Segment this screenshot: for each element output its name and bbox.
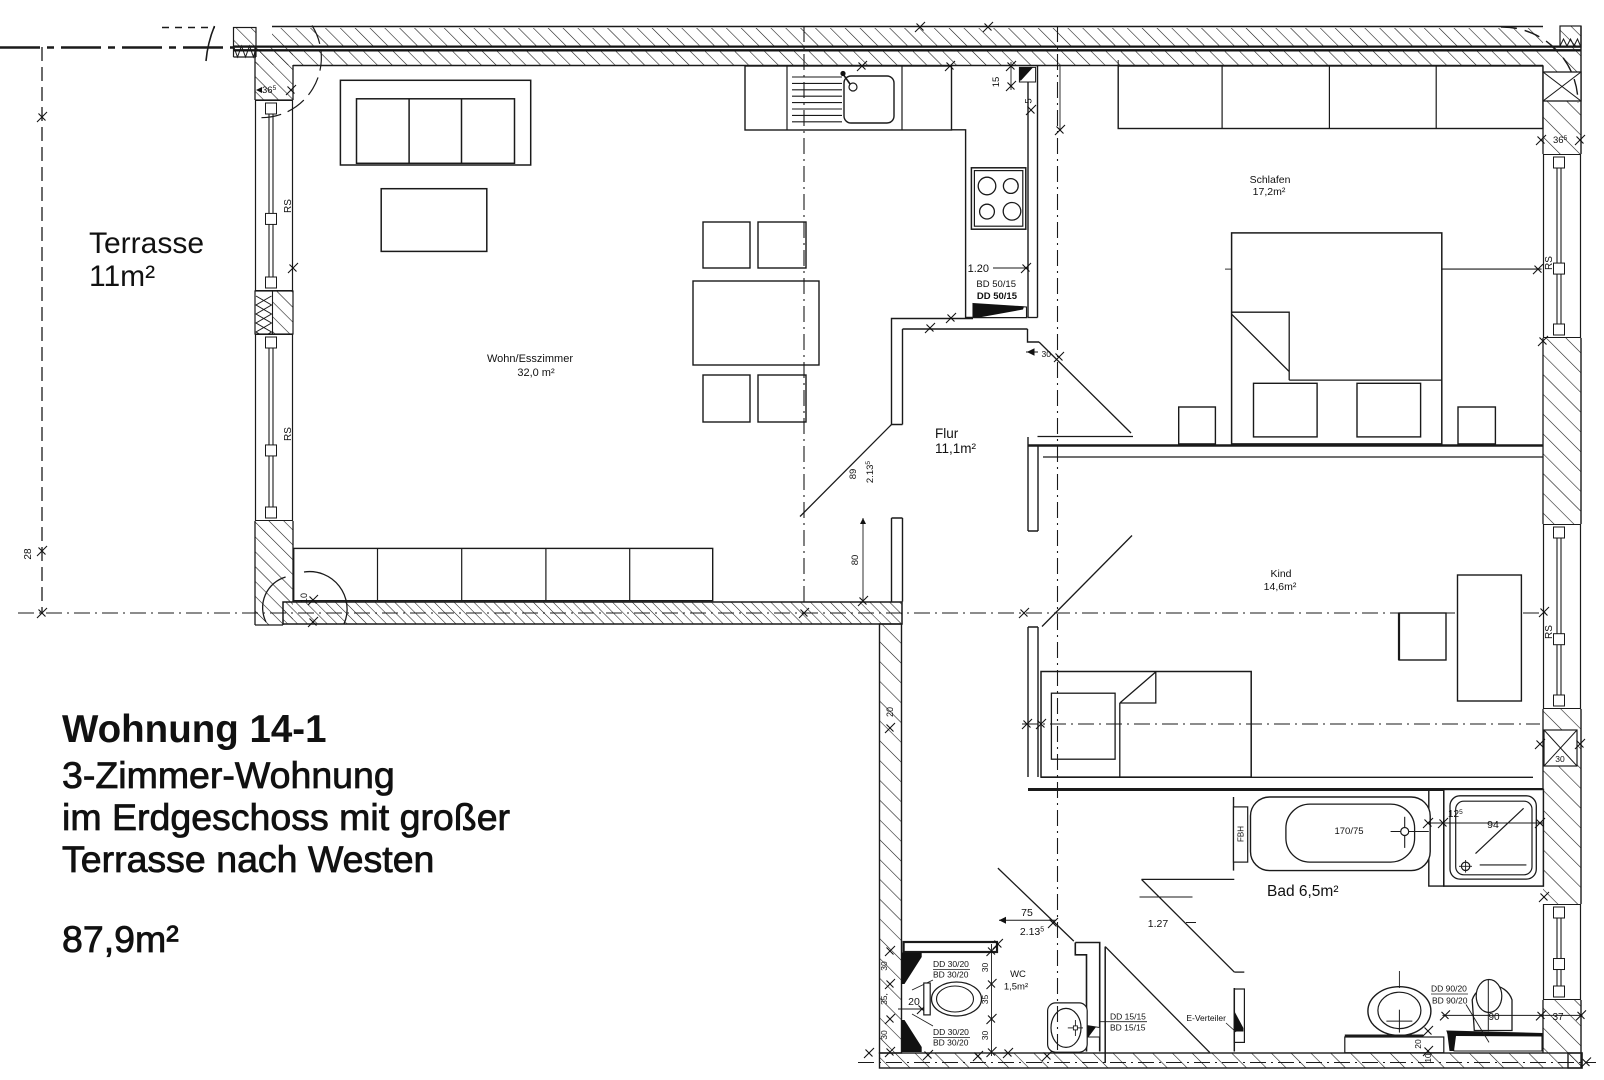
svg-text:30: 30	[980, 963, 990, 973]
svg-text:Schlafen: Schlafen	[1250, 174, 1291, 186]
svg-text:RS: RS	[283, 427, 294, 441]
svg-text:BD 15/15: BD 15/15	[1110, 1023, 1146, 1033]
svg-text:32,0 m²: 32,0 m²	[517, 367, 555, 379]
svg-text:5: 5	[1024, 98, 1035, 103]
svg-text:20: 20	[885, 707, 895, 717]
svg-text:BD 30/20: BD 30/20	[933, 970, 969, 980]
svg-text:30: 30	[980, 1031, 990, 1041]
svg-text:Wohn/Esszimmer: Wohn/Esszimmer	[487, 353, 573, 365]
svg-text:30: 30	[1555, 754, 1565, 764]
svg-text:17,2m²: 17,2m²	[1253, 186, 1286, 198]
svg-text:Wohnung 14-1: Wohnung 14-1	[62, 708, 327, 751]
svg-text:FBH: FBH	[1237, 826, 1246, 842]
svg-text:RS: RS	[283, 199, 294, 213]
svg-text:15: 15	[991, 77, 1002, 88]
svg-text:1,5m²: 1,5m²	[1004, 982, 1028, 993]
svg-text:14,6m²: 14,6m²	[1264, 581, 1297, 593]
svg-text:80: 80	[850, 555, 861, 566]
svg-text:Flur: Flur	[935, 426, 959, 441]
svg-text:20: 20	[1413, 1039, 1423, 1049]
svg-text:94: 94	[1487, 819, 1499, 831]
svg-text:11,1m²: 11,1m²	[935, 441, 977, 456]
svg-text:89: 89	[848, 469, 859, 480]
svg-text:Terrasse: Terrasse	[89, 227, 204, 260]
svg-text:75: 75	[1021, 907, 1033, 919]
svg-text:DD 90/20: DD 90/20	[1431, 984, 1467, 994]
svg-text:170/75: 170/75	[1334, 826, 1363, 837]
svg-text:20: 20	[908, 996, 920, 1008]
svg-text:BD 90/20: BD 90/20	[1432, 996, 1468, 1006]
svg-text:1.27: 1.27	[1148, 918, 1169, 930]
svg-text:10: 10	[1424, 1053, 1433, 1062]
svg-text:DD 30/20: DD 30/20	[933, 1027, 969, 1037]
svg-text:30: 30	[879, 961, 889, 971]
svg-text:E-Verteiler: E-Verteiler	[1186, 1013, 1226, 1023]
svg-text:30: 30	[1042, 349, 1052, 359]
svg-text:35,: 35,	[879, 993, 889, 1005]
svg-text:37: 37	[1552, 1012, 1564, 1023]
svg-text:28: 28	[23, 548, 34, 560]
svg-text:87,9m²: 87,9m²	[62, 918, 179, 960]
svg-text:BD 50/15: BD 50/15	[976, 279, 1016, 290]
svg-text:RS: RS	[1544, 256, 1555, 270]
svg-text:Kind: Kind	[1270, 568, 1291, 580]
svg-text:BD 30/20: BD 30/20	[933, 1038, 969, 1048]
svg-text:11m²: 11m²	[89, 260, 155, 293]
svg-text:DD 30/20: DD 30/20	[933, 959, 969, 969]
svg-text:1.20: 1.20	[968, 263, 989, 275]
svg-text:10: 10	[299, 593, 309, 603]
svg-text:DD 50/15: DD 50/15	[977, 291, 1018, 302]
svg-text:WC: WC	[1010, 969, 1026, 980]
svg-text:DD 15/15: DD 15/15	[1110, 1012, 1146, 1022]
svg-text:RS: RS	[1544, 625, 1555, 639]
svg-text:30: 30	[879, 1030, 889, 1040]
svg-text:Terrasse nach Westen: Terrasse nach Westen	[62, 838, 434, 880]
svg-text:im Erdgeschoss mit großer: im Erdgeschoss mit großer	[62, 796, 510, 838]
svg-text:3-Zimmer-Wohnung: 3-Zimmer-Wohnung	[62, 754, 395, 796]
svg-text:Bad 6,5m²: Bad 6,5m²	[1267, 883, 1339, 900]
svg-text:90: 90	[1488, 1012, 1500, 1023]
